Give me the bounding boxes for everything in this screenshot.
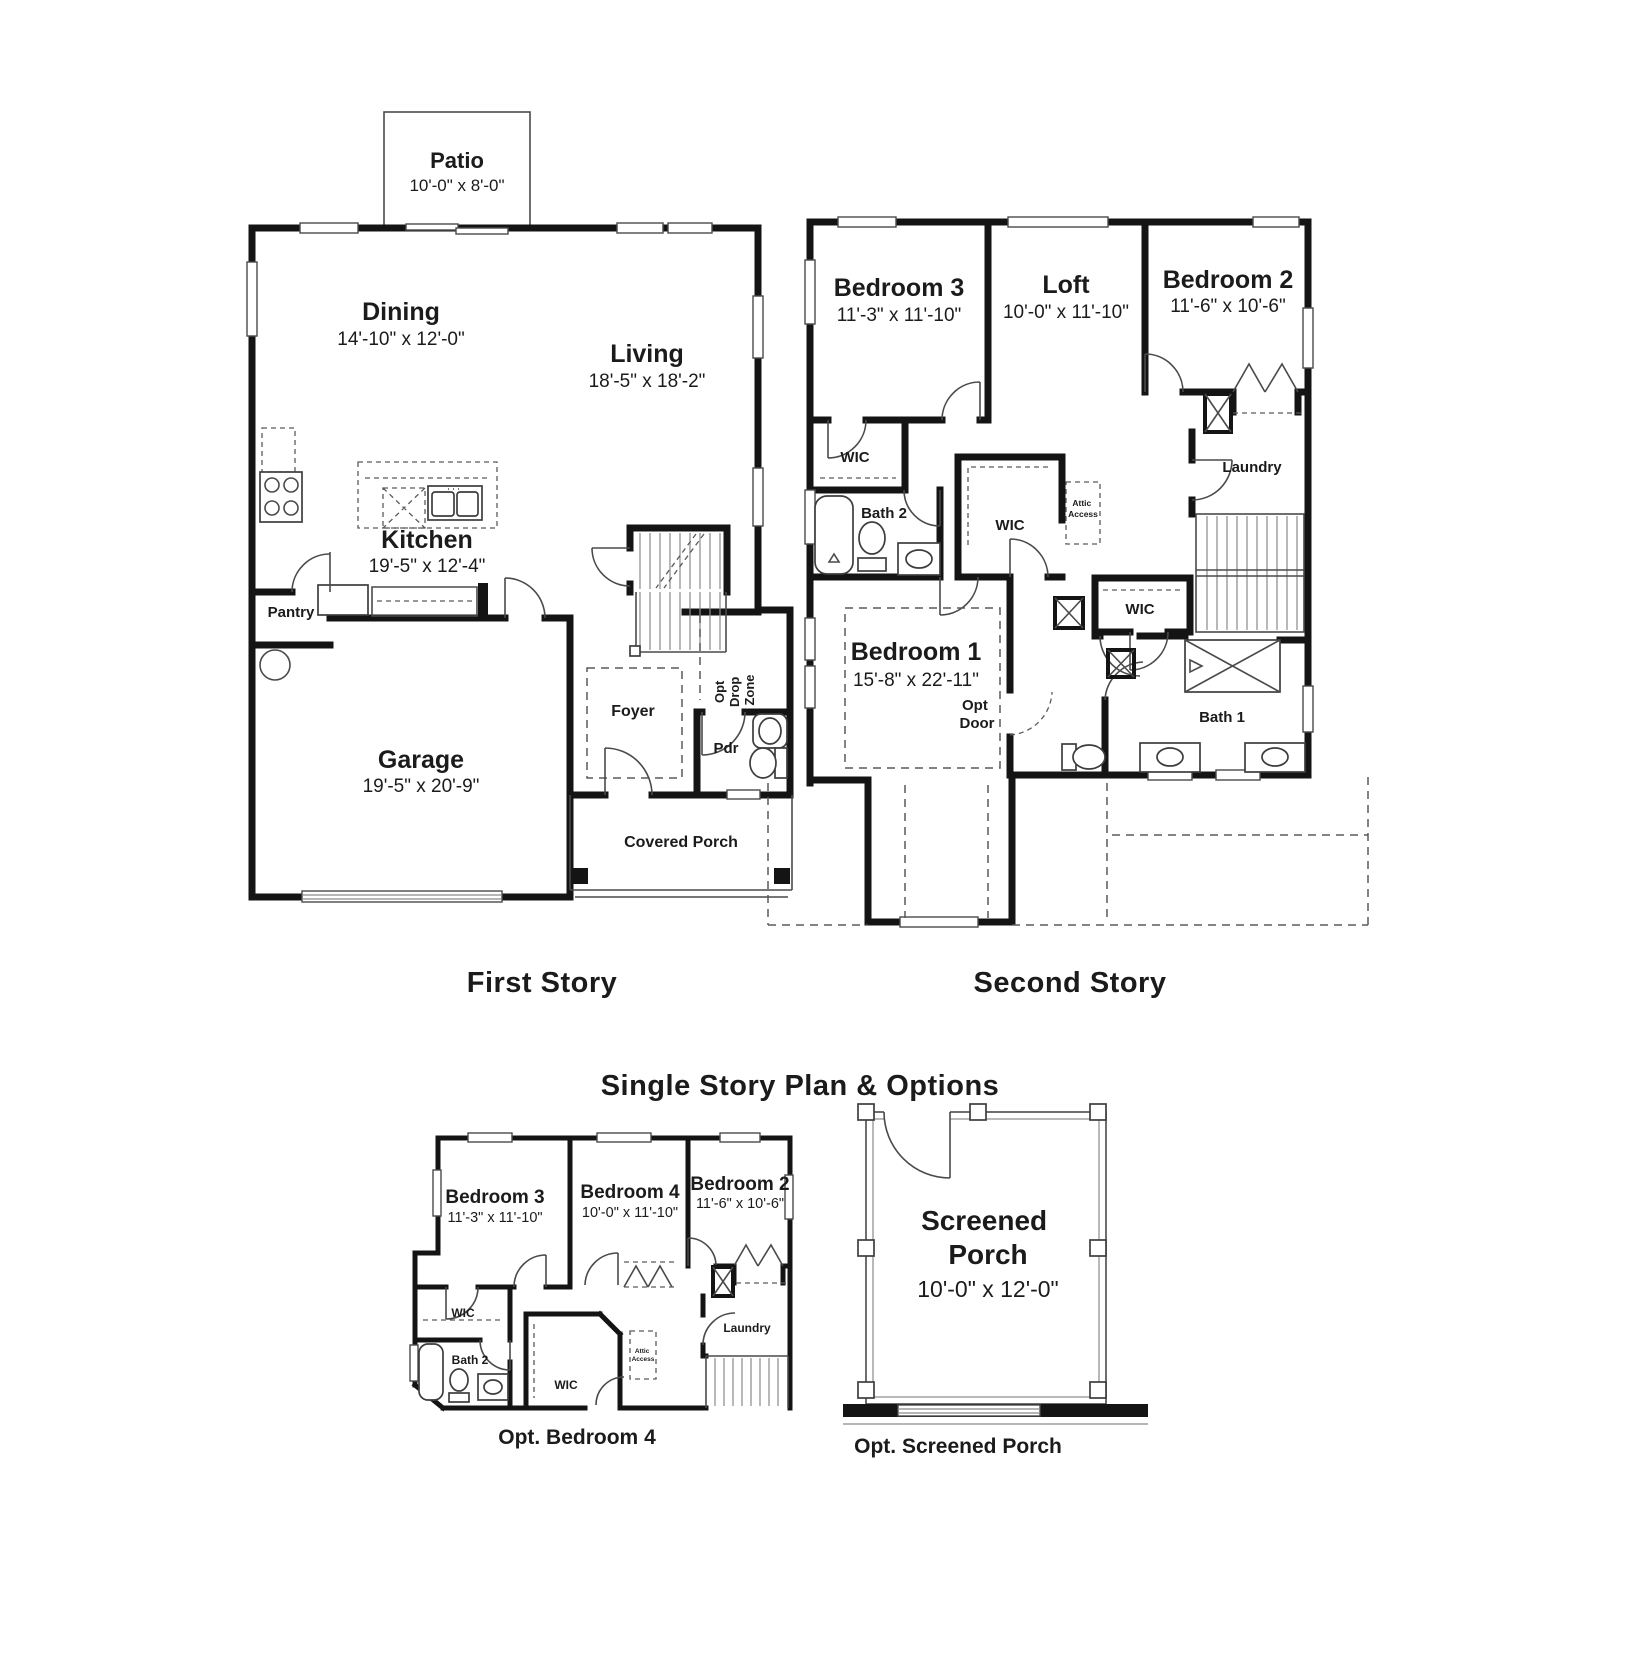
wic-b1-label: WIC bbox=[1125, 601, 1154, 618]
linen-closet-x bbox=[1205, 394, 1231, 432]
laundry-label: Laundry bbox=[723, 1321, 771, 1335]
attic-access-label: Attic Access bbox=[632, 1348, 655, 1363]
wic-center-door bbox=[1010, 539, 1048, 577]
screened-porch-label: Screened Porch bbox=[921, 1205, 1055, 1270]
loft-label: Loft bbox=[1042, 271, 1090, 299]
wall-stub bbox=[478, 583, 488, 619]
wic-b3-label: WIC bbox=[840, 449, 869, 466]
second-story-title: Second Story bbox=[974, 967, 1167, 999]
window bbox=[617, 223, 663, 233]
window bbox=[597, 1133, 651, 1142]
bedroom2-door bbox=[1145, 354, 1183, 392]
front-door bbox=[605, 748, 652, 795]
bedroom1-door bbox=[940, 577, 978, 615]
garage-label: Garage bbox=[378, 746, 464, 774]
window bbox=[720, 1133, 760, 1142]
bedroom3-label: Bedroom 3 bbox=[834, 274, 965, 302]
window bbox=[468, 1133, 512, 1142]
laundry-label: Laundry bbox=[1222, 459, 1282, 476]
garage-door bbox=[302, 891, 502, 902]
bedroom4-label: Bedroom 4 bbox=[580, 1182, 680, 1203]
bedroom2-door bbox=[688, 1238, 716, 1266]
range-stove bbox=[260, 472, 302, 522]
dishwasher bbox=[383, 488, 425, 528]
kitchen-dims: 19'-5" x 12'-4" bbox=[369, 556, 486, 577]
window bbox=[1303, 686, 1313, 732]
linen-closet-x bbox=[1055, 598, 1083, 628]
drop-zone-label: Opt Drop Zone bbox=[712, 673, 757, 707]
window bbox=[753, 296, 763, 358]
bath2-label: Bath 2 bbox=[861, 505, 907, 522]
opt-screened-porch-plan: Screened Porch 10'-0" x 12'-0" Opt. Scre… bbox=[843, 1104, 1148, 1458]
first-story-plan: Patio 10'-0" x 8'-0" Dining 14'-10" x 12… bbox=[247, 112, 792, 999]
bedroom2-dims: 11'-6" x 10'-6" bbox=[696, 1196, 784, 1212]
opt-bedroom4-title: Opt. Bedroom 4 bbox=[498, 1426, 656, 1449]
wic-center-label: WIC bbox=[554, 1378, 578, 1392]
window bbox=[805, 490, 815, 544]
stair-closet-door bbox=[592, 548, 630, 586]
bifold-doors bbox=[624, 1266, 672, 1287]
porch-post bbox=[774, 868, 790, 884]
bedroom3-door bbox=[514, 1255, 546, 1287]
bath2-label: Bath 2 bbox=[452, 1353, 489, 1367]
linen-closet-x bbox=[713, 1267, 733, 1296]
patio-dims: 10'-0" x 8'-0" bbox=[409, 176, 504, 195]
window bbox=[410, 1345, 418, 1381]
bedroom2-label: Bedroom 2 bbox=[690, 1174, 789, 1195]
window bbox=[433, 1170, 441, 1216]
stairs bbox=[630, 533, 726, 656]
covered-porch-label: Covered Porch bbox=[624, 834, 738, 851]
window bbox=[1253, 217, 1299, 227]
floor-plan-drawing: Patio 10'-0" x 8'-0" Dining 14'-10" x 12… bbox=[0, 0, 1647, 1653]
wic-center-label: WIC bbox=[995, 517, 1024, 534]
second-story-plan: Bedroom 3 11'-3" x 11'-10" Loft 10'-0" x… bbox=[768, 217, 1368, 999]
window bbox=[900, 917, 978, 927]
garage-dims: 19'-5" x 20'-9" bbox=[363, 776, 480, 797]
counter bbox=[318, 585, 368, 615]
second-story-walls bbox=[810, 222, 1308, 922]
slider-door bbox=[898, 1405, 1040, 1416]
bedroom3-door bbox=[942, 382, 980, 420]
bifold-doors bbox=[734, 1245, 783, 1266]
window bbox=[1303, 308, 1313, 368]
bedroom2-dims: 11'-6" x 10'-6" bbox=[1170, 296, 1285, 317]
door-gap bbox=[884, 1106, 950, 1122]
loft-dims: 10'-0" x 11'-10" bbox=[1003, 302, 1129, 323]
bedroom3-label: Bedroom 3 bbox=[445, 1187, 544, 1208]
screened-porch-dims: 10'-0" x 12'-0" bbox=[917, 1276, 1058, 1302]
options-title: Single Story Plan & Options bbox=[601, 1070, 1000, 1102]
opt-door-label: Opt Door bbox=[960, 697, 995, 732]
window bbox=[805, 666, 815, 708]
roof-below-dash bbox=[768, 775, 1368, 925]
bath2-door bbox=[904, 490, 940, 526]
window bbox=[668, 223, 712, 233]
bedroom4-dims: 10'-0" x 11'-10" bbox=[582, 1205, 678, 1221]
window bbox=[838, 217, 896, 227]
kitchen-door bbox=[505, 578, 545, 618]
kitchen-label: Kitchen bbox=[381, 526, 473, 554]
bedroom4-door bbox=[585, 1253, 618, 1285]
stairs bbox=[1196, 514, 1304, 632]
patio-label: Patio bbox=[430, 148, 484, 173]
attic-access-outline bbox=[630, 1331, 656, 1379]
floor-plan-page: Patio 10'-0" x 8'-0" Dining 14'-10" x 12… bbox=[0, 0, 1647, 1653]
dining-label: Dining bbox=[362, 298, 440, 326]
patio-slider-door bbox=[406, 224, 458, 230]
bedroom3-dims: 11'-3" x 11'-10" bbox=[837, 305, 962, 326]
window bbox=[300, 223, 358, 233]
window bbox=[805, 618, 815, 660]
window bbox=[727, 790, 760, 799]
window bbox=[753, 468, 763, 526]
window bbox=[1008, 217, 1108, 227]
porch-post bbox=[572, 868, 588, 884]
opt-door-arc bbox=[1010, 692, 1052, 735]
water-heater bbox=[260, 650, 290, 680]
foyer-label: Foyer bbox=[611, 703, 655, 720]
bedroom1-dims: 15'-8" x 22'-11" bbox=[853, 670, 979, 691]
bath1-label: Bath 1 bbox=[1199, 709, 1245, 726]
living-label: Living bbox=[610, 340, 684, 368]
pdr-toilet bbox=[750, 748, 787, 778]
bifold-doors bbox=[1233, 364, 1298, 392]
kitchen-sink bbox=[428, 486, 482, 520]
foyer-outline bbox=[587, 668, 682, 778]
window bbox=[247, 262, 257, 336]
bedroom2-label: Bedroom 2 bbox=[1163, 266, 1294, 294]
patio-slider-door bbox=[456, 228, 508, 234]
opt-screened-porch-title: Opt. Screened Porch bbox=[854, 1435, 1062, 1458]
bath1-fixtures bbox=[1062, 640, 1305, 772]
first-story-title: First Story bbox=[467, 967, 618, 999]
counter bbox=[262, 428, 295, 472]
pdr-sink bbox=[753, 714, 787, 748]
bedroom3-dims: 11'-3" x 11'-10" bbox=[447, 1210, 542, 1226]
wic-left-label: WIC bbox=[451, 1306, 475, 1320]
stairs bbox=[706, 1356, 788, 1408]
opt-bedroom4-plan: Bedroom 3 11'-3" x 11'-10" Bedroom 4 10'… bbox=[410, 1133, 793, 1449]
dining-dims: 14'-10" x 12'-0" bbox=[337, 329, 464, 350]
pantry-label: Pantry bbox=[268, 604, 315, 621]
bedroom1-label: Bedroom 1 bbox=[851, 638, 982, 666]
pdr-label: Pdr bbox=[713, 740, 738, 757]
attic-access-label: Attic Access bbox=[1068, 498, 1098, 519]
living-dims: 18'-5" x 18'-2" bbox=[589, 371, 706, 392]
window bbox=[805, 260, 815, 324]
first-story-walls bbox=[252, 228, 790, 897]
